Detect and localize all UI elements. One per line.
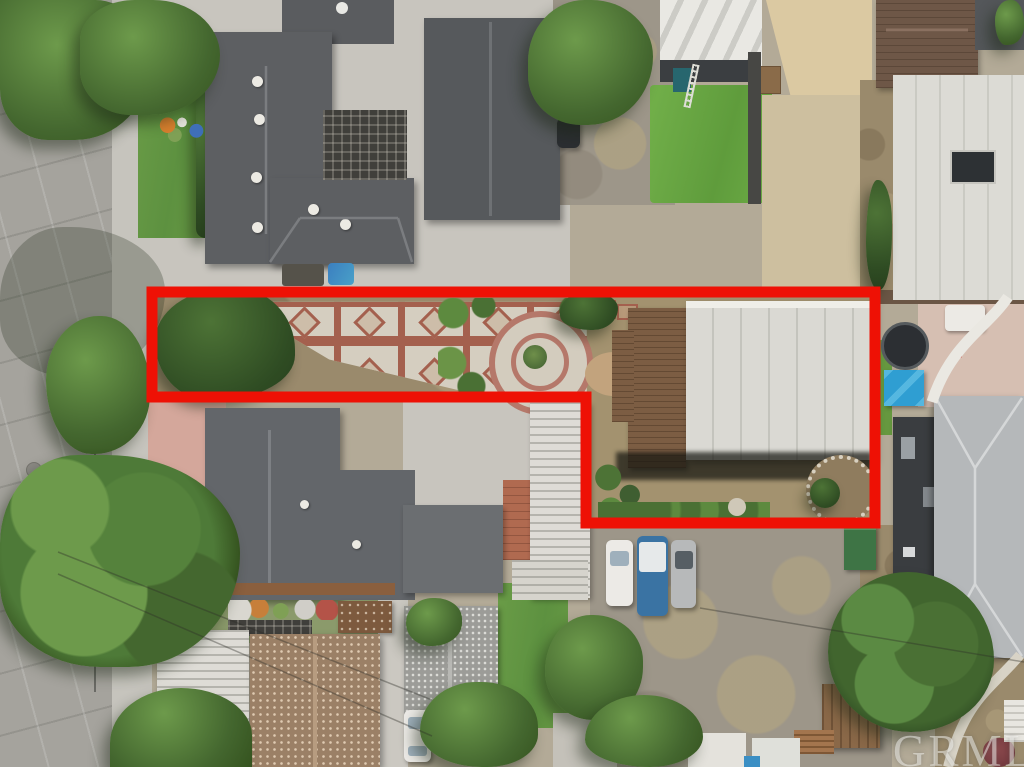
aerial-photo: GRMLS: [0, 0, 1024, 767]
utility-wires: [58, 552, 1024, 736]
annotation-layer: [0, 0, 1024, 767]
property-boundary-outline: [152, 292, 875, 523]
watermark-text: GRMLS: [893, 725, 1024, 767]
